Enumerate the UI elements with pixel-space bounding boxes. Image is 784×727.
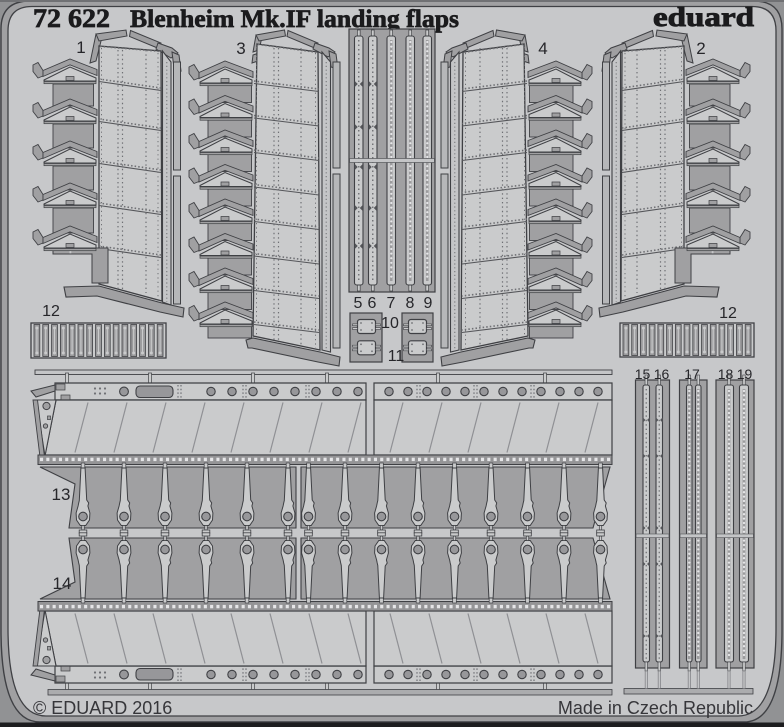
svg-text:5: 5	[354, 295, 363, 312]
svg-text:11: 11	[388, 348, 405, 365]
svg-text:13: 13	[52, 485, 71, 504]
svg-text:3: 3	[236, 39, 245, 58]
svg-text:19: 19	[737, 366, 753, 382]
svg-text:10: 10	[381, 315, 399, 332]
svg-text:8: 8	[406, 295, 415, 312]
svg-text:17: 17	[684, 366, 700, 382]
svg-text:72 622: 72 622	[33, 4, 110, 33]
svg-text:12: 12	[719, 305, 737, 322]
svg-text:1: 1	[76, 38, 85, 57]
svg-text:16: 16	[654, 366, 670, 382]
svg-text:2: 2	[696, 39, 705, 58]
svg-text:Made in Czech Republic: Made in Czech Republic	[558, 698, 753, 718]
svg-text:12: 12	[42, 303, 60, 320]
svg-text:7: 7	[387, 295, 396, 312]
svg-text:© EDUARD 2016: © EDUARD 2016	[33, 698, 172, 718]
svg-text:15: 15	[635, 366, 651, 382]
svg-text:9: 9	[424, 295, 433, 312]
svg-text:6: 6	[368, 295, 377, 312]
svg-text:14: 14	[53, 574, 72, 593]
svg-text:18: 18	[718, 366, 734, 382]
svg-text:eduard: eduard	[653, 2, 754, 32]
svg-text:4: 4	[538, 39, 547, 58]
